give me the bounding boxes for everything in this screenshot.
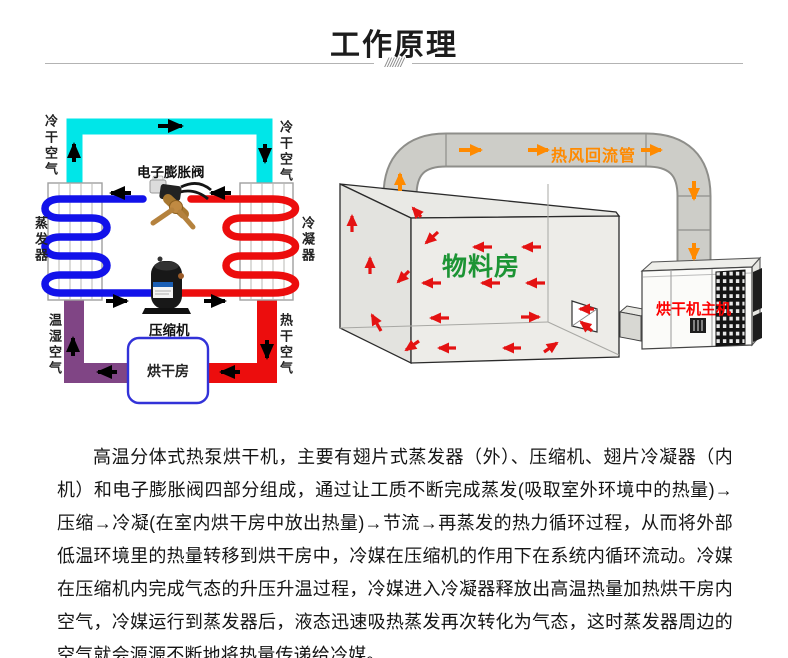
hot-dry-air-duct (204, 300, 267, 373)
dryer-side-panel (753, 312, 762, 342)
condenser-label: 冷凝器 (298, 216, 317, 264)
material-room-label: 物料房 (442, 247, 520, 283)
valve-wire (181, 183, 211, 190)
dryer-side-panel (753, 268, 762, 312)
expansion-valve-label: 电子膨胀阀 (137, 161, 205, 181)
hot-dry-air-label: 热干空气 (276, 313, 295, 377)
warm-humid-air-label: 温湿空气 (45, 313, 64, 377)
principle-diagram (0, 95, 788, 415)
compressor-image (142, 257, 191, 315)
evaporator-label: 蒸发器 (31, 216, 50, 264)
description-text: 高温分体式热泵烘干机，主要有翅片式蒸发器（外）、压缩机、翅片冷凝器（内机）和电子… (57, 441, 733, 658)
divider-hatch-icon: /////// (378, 55, 410, 70)
drying-room-label: 烘干房 (128, 338, 208, 403)
drying-system-diagram (340, 134, 762, 363)
working-principle-page: 工作原理 /////// (0, 0, 788, 658)
warm-humid-air-duct (74, 300, 131, 373)
compressor-label: 压缩机 (149, 319, 190, 339)
cold-dry-air-label-left: 冷干空气 (41, 114, 60, 178)
divider-line-right (412, 63, 743, 64)
divider-line-left (45, 63, 374, 64)
dryer-unit-label: 烘干机主机 (656, 298, 731, 319)
return-duct-label: 热风回流管 (551, 142, 636, 166)
cold-dry-air-label-right: 冷干空气 (276, 120, 295, 184)
